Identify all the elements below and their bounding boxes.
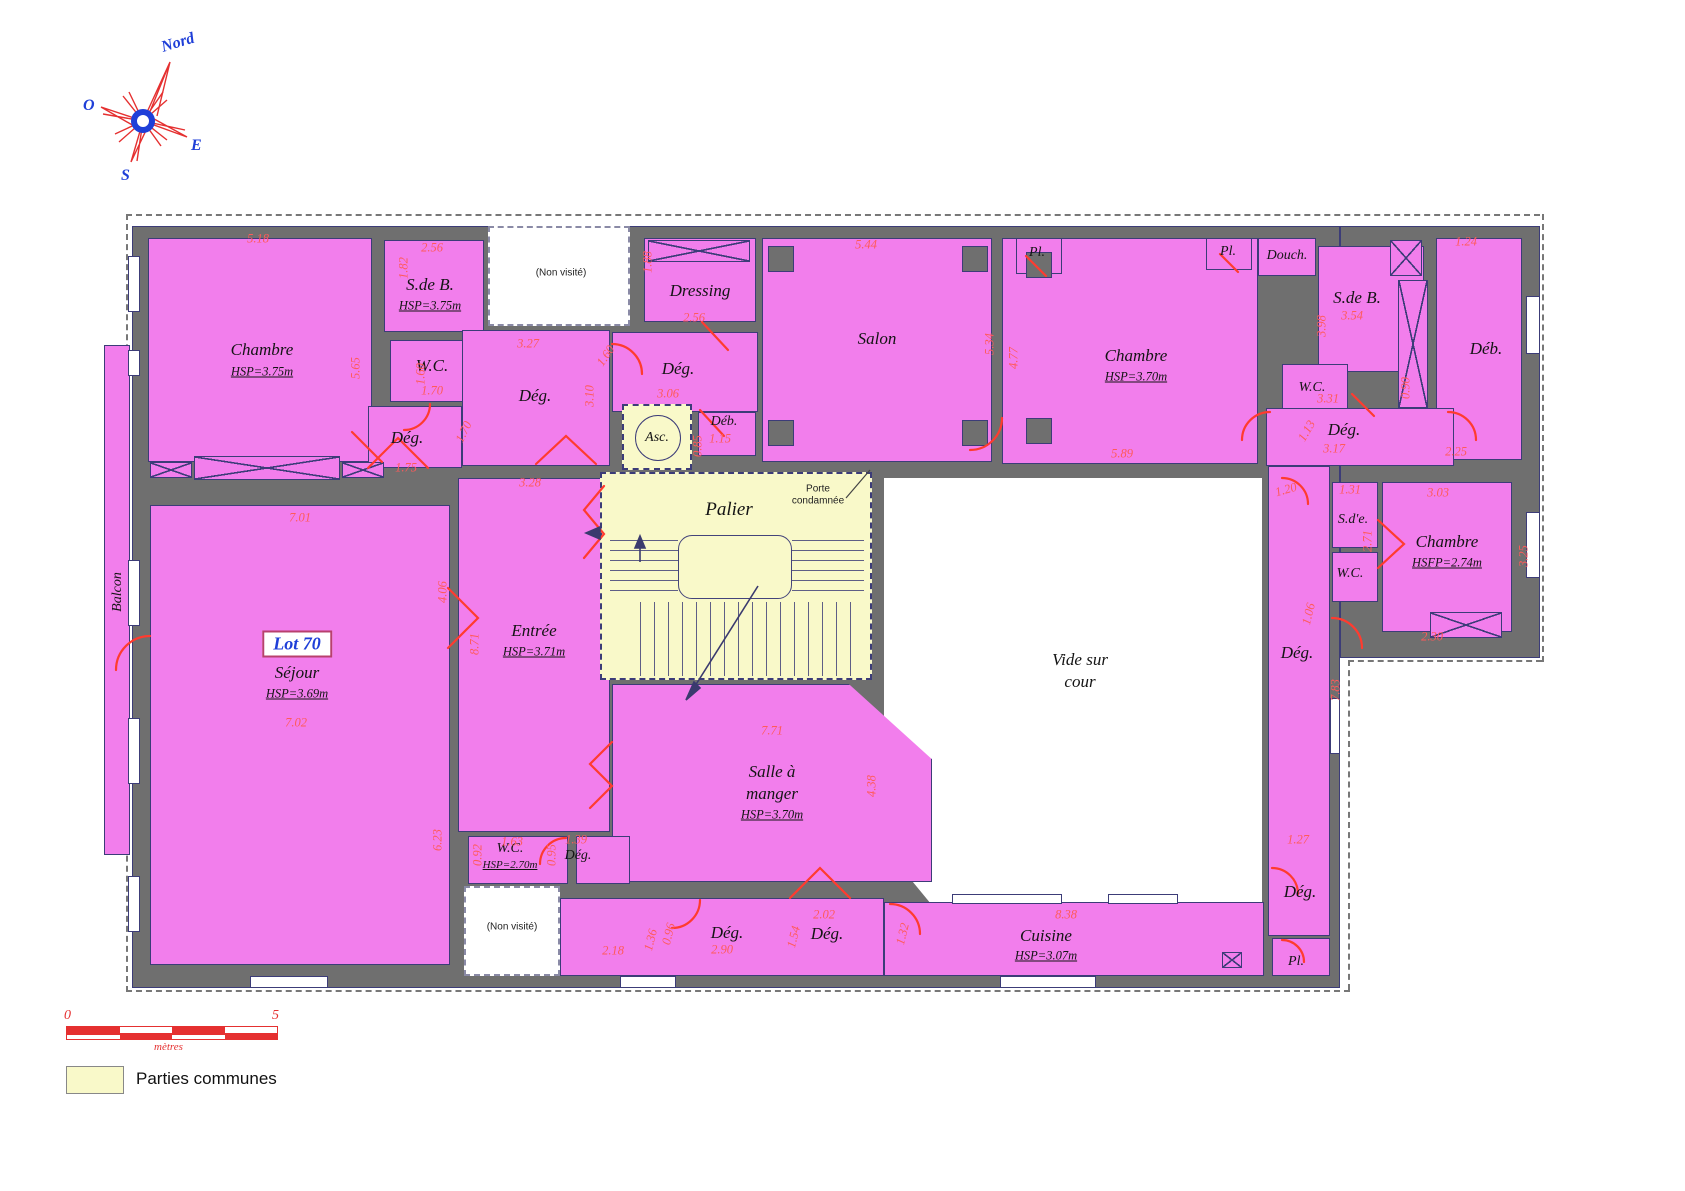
dimension: 2.71 <box>1361 530 1376 552</box>
hsp-sejour: HSP=3.69m <box>266 687 328 702</box>
label-vide-2: cour <box>1064 672 1095 692</box>
boundary-right-step <box>1348 660 1542 662</box>
pillar <box>768 246 794 272</box>
dimension: 2.18 <box>602 944 624 959</box>
window <box>128 256 140 312</box>
dimension: 3.25 <box>1517 545 1532 567</box>
label-dressing: Dressing <box>670 281 731 301</box>
closet-xbox <box>194 456 340 480</box>
scale-bar: 0 5 mètres <box>66 1008 290 1058</box>
compass-west-label: O <box>83 97 95 114</box>
label-sejour: Séjour <box>275 663 319 683</box>
dimension: 1.82 <box>397 257 412 279</box>
window <box>952 894 1062 904</box>
label-chambre-tl: Chambre <box>231 340 294 360</box>
label-pl-1: Pl. <box>1029 245 1045 261</box>
boundary-right-lower <box>1348 660 1350 990</box>
window <box>620 976 676 988</box>
scale-bar-row2 <box>66 1034 278 1040</box>
hsp-chambre-tl: HSP=3.75m <box>231 365 293 380</box>
scale-zero: 0 <box>64 1008 71 1024</box>
scale-unit: mètres <box>154 1041 183 1053</box>
dimension: 1.75 <box>395 461 417 476</box>
dimension: 3.28 <box>519 476 541 491</box>
label-deg-r2: Dég. <box>1281 643 1314 663</box>
window <box>1000 976 1096 988</box>
label-deg-c1: Dég. <box>519 386 552 406</box>
dimension: 1.24 <box>1455 235 1477 250</box>
label-salon: Salon <box>858 329 897 349</box>
label-deg-b2: Dég. <box>711 923 744 943</box>
dimension: 2.25 <box>1445 445 1467 460</box>
pillar <box>1026 418 1052 444</box>
window <box>128 560 140 626</box>
room-deg-right-corridor <box>1268 466 1330 936</box>
dimension: 1.15 <box>709 432 731 447</box>
hsp-salle: HSP=3.70m <box>741 808 803 823</box>
dimension: 4.06 <box>436 581 451 603</box>
label-deb-c: Déb. <box>711 414 738 430</box>
porte-condamnee-line2: condamnée <box>792 496 844 507</box>
dimension: 7.01 <box>289 511 311 526</box>
closet-xbox <box>648 240 750 262</box>
scale-bar-row1 <box>66 1026 278 1034</box>
label-balcon: Balcon <box>110 572 126 612</box>
dimension: 1.31 <box>1339 483 1361 498</box>
dimension: 7.83 <box>1329 679 1344 701</box>
compass-north-label: Nord <box>158 29 197 56</box>
pillar <box>768 420 794 446</box>
label-salle-2: manger <box>746 784 798 804</box>
lot-70-badge: Lot 70 <box>262 631 332 658</box>
dimension: 1.27 <box>1287 833 1309 848</box>
boundary-top <box>126 214 1540 216</box>
scale-five: 5 <box>272 1008 279 1024</box>
dimension: 5.89 <box>1111 447 1133 462</box>
dimension: 7.02 <box>285 716 307 731</box>
window <box>1330 698 1340 754</box>
legend-common-swatch <box>66 1066 124 1094</box>
label-wc-r2: W.C. <box>1337 566 1364 582</box>
legend-common-label: Parties communes <box>136 1069 277 1089</box>
dimension: 2.02 <box>813 908 835 923</box>
dimension: 3.17 <box>1323 442 1345 457</box>
boundary-right-upper <box>1542 214 1544 662</box>
dimension: 3.10 <box>583 385 598 407</box>
dimension: 0.90 <box>1399 377 1414 399</box>
dimension: 0.92 <box>471 844 486 866</box>
dimension: 8.71 <box>468 633 483 655</box>
room-salon <box>762 238 992 462</box>
stairwell-island <box>678 535 792 599</box>
non-visite-top-label: (Non visité) <box>536 268 587 279</box>
pillar <box>962 246 988 272</box>
window <box>250 976 328 988</box>
label-entree: Entrée <box>511 621 556 641</box>
label-deg-r1: Dég. <box>1328 420 1361 440</box>
label-deg-c2: Dég. <box>662 359 695 379</box>
hsp-sdb-tl: HSP=3.75m <box>399 299 461 314</box>
window <box>128 718 140 784</box>
hsp-entree: HSP=3.71m <box>503 645 565 660</box>
label-palier: Palier <box>705 499 753 521</box>
label-deg-b3: Dég. <box>811 924 844 944</box>
label-pl-2: Pl. <box>1220 244 1236 260</box>
window <box>1526 296 1540 354</box>
dimension: 7.71 <box>761 724 783 739</box>
label-vide-1: Vide sur <box>1052 650 1108 670</box>
hsp-cuisine: HSP=3.07m <box>1015 949 1077 964</box>
porte-condamnee-line1: Porte <box>806 484 830 495</box>
stair-treads-left <box>610 540 678 598</box>
pillar <box>962 420 988 446</box>
dimension: 2.56 <box>421 241 443 256</box>
label-deg-b1: Dég. <box>565 848 592 864</box>
window <box>128 350 140 376</box>
dimension: 4.77 <box>1007 347 1022 369</box>
dimension: 0.85 <box>691 435 706 457</box>
dimension: 1.63 <box>501 835 523 850</box>
label-sde: S.d'e. <box>1338 512 1368 528</box>
label-cuisine: Cuisine <box>1020 926 1072 946</box>
dimension: 2.90 <box>711 943 733 958</box>
dimension: 1.70 <box>421 384 443 399</box>
dimension: 5.65 <box>349 357 364 379</box>
hsp-wc-b: HSP=2.70m <box>483 859 538 871</box>
dimension: 4.38 <box>865 775 880 797</box>
dimension: 6.23 <box>431 829 446 851</box>
floor-plan-page: Nord O E S <box>0 0 1685 1191</box>
dimension: 3.31 <box>1317 392 1339 407</box>
dimension: 5.18 <box>247 232 269 247</box>
label-chambre-tr: Chambre <box>1105 346 1168 366</box>
label-sdb-tl: S.de B. <box>406 275 454 295</box>
label-pl-b: Pl. <box>1288 954 1304 970</box>
label-deb-r: Déb. <box>1470 339 1503 359</box>
label-salle-1: Salle à <box>749 762 796 782</box>
label-sdb-tr: S.de B. <box>1333 288 1381 308</box>
dimension: 1.39 <box>565 833 587 848</box>
dimension: 0.95 <box>545 844 560 866</box>
non-visite-bottom-label: (Non visité) <box>487 922 538 933</box>
dimension: 3.27 <box>517 337 539 352</box>
label-deg-tl: Dég. <box>391 428 424 448</box>
compass-rose: Nord O E S <box>75 18 275 188</box>
dimension: 3.98 <box>1315 315 1330 337</box>
stair-treads-right <box>792 540 864 598</box>
dimension: 5.34 <box>983 333 998 355</box>
closet-xbox <box>150 462 192 478</box>
closet-xbox <box>1390 240 1422 276</box>
label-asc: Asc. <box>645 430 669 446</box>
dimension: 2.30 <box>1421 630 1443 645</box>
room-sejour <box>150 505 450 965</box>
compass-east-label: E <box>190 137 202 154</box>
closet-xbox <box>1222 952 1242 968</box>
label-deg-br: Dég. <box>1284 882 1317 902</box>
boundary-bottom <box>126 990 1350 992</box>
dimension: 3.54 <box>1341 309 1363 324</box>
dimension: 2.56 <box>683 311 705 326</box>
dimension: 5.44 <box>855 238 877 253</box>
hsp-chambre-tr: HSP=3.70m <box>1105 370 1167 385</box>
dimension: 3.03 <box>1427 486 1449 501</box>
window <box>128 876 140 932</box>
label-chambre-r: Chambre <box>1416 532 1479 552</box>
label-douch: Douch. <box>1267 248 1308 264</box>
dimension: 8.38 <box>1055 908 1077 923</box>
closet-xbox <box>342 462 384 478</box>
dimension: 3.06 <box>657 387 679 402</box>
stair-treads-bottom <box>640 602 864 676</box>
compass-south-label: S <box>121 167 130 184</box>
dimension: 1.60 <box>414 363 429 385</box>
dimension: 1.88 <box>641 251 656 273</box>
window <box>1108 894 1178 904</box>
hsp-chambre-r: HSFP=2.74m <box>1412 556 1482 571</box>
